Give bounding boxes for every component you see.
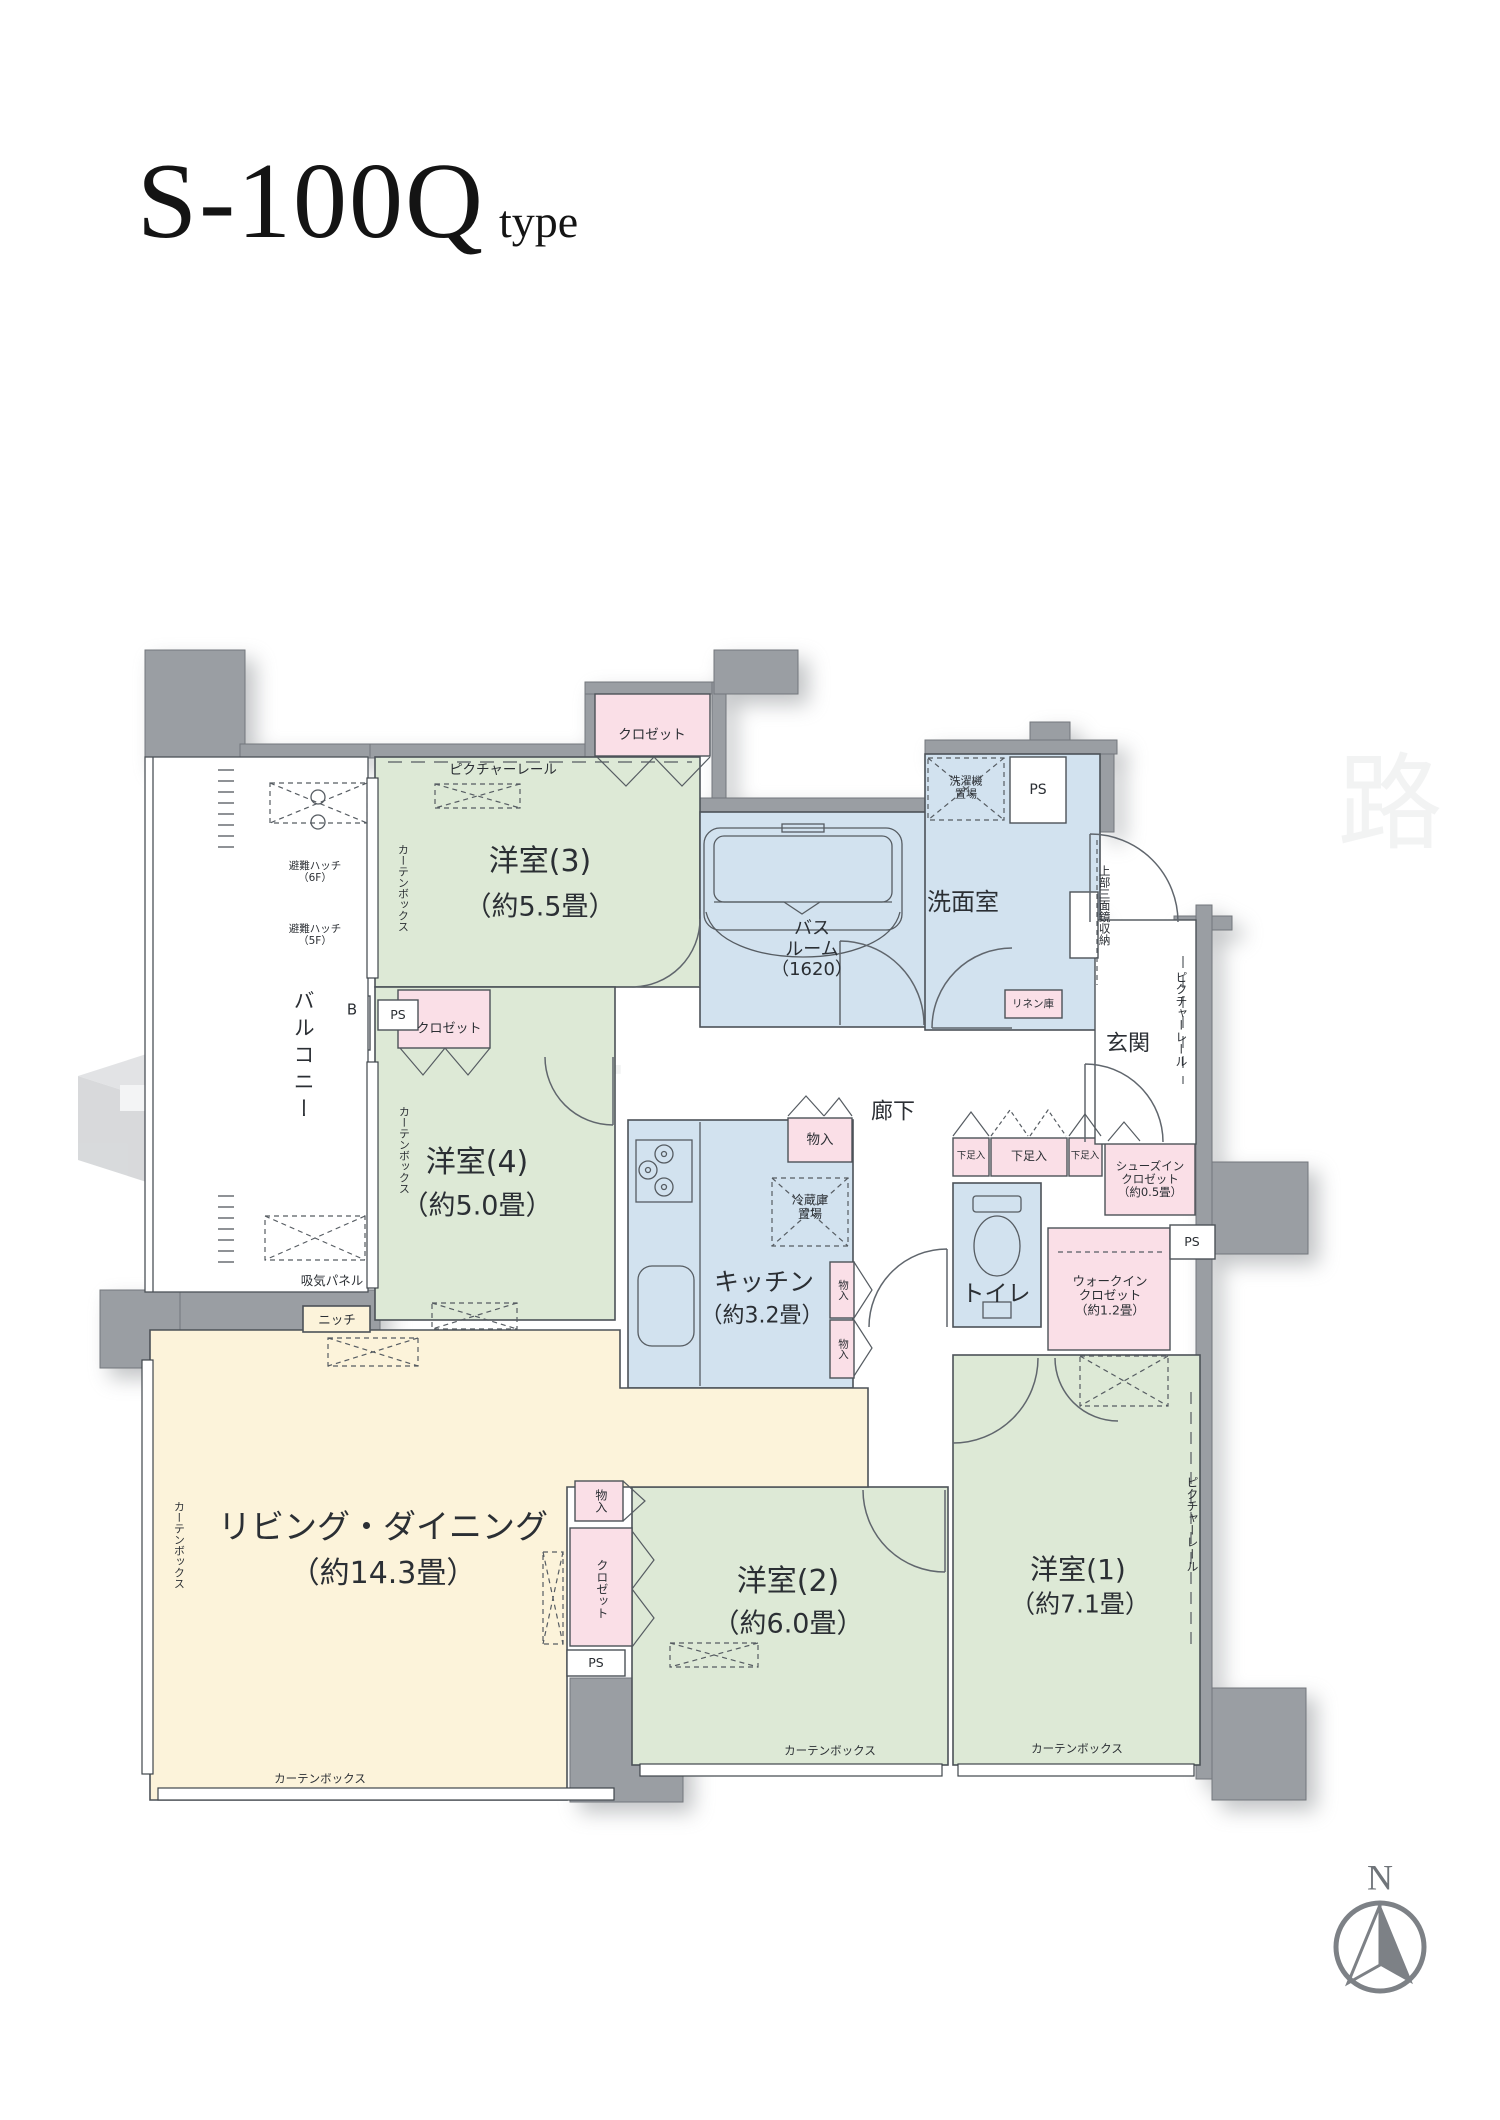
closet-label-y4: クロゼット xyxy=(416,1023,481,1038)
closet-yoshitsu3 xyxy=(595,694,710,756)
curtain-box-label-y3: カーテンボックス xyxy=(396,844,409,932)
room-size-yoshitsu1: （約7.1畳） xyxy=(1010,1591,1150,1620)
picture-rail-label-y1: ピクチャーレール xyxy=(1184,1476,1198,1572)
room-size-living: （約14.3畳） xyxy=(290,1557,477,1592)
room-size-yoshitsu3: （約5.5畳） xyxy=(465,891,616,922)
room-label-bath: バス ルーム （1620） xyxy=(771,919,853,981)
ps-label-balcony: PS xyxy=(390,1008,405,1022)
room-label-wash: 洗面室 xyxy=(927,889,999,917)
wic-label: ウォークイン クロゼット （約1.2畳） xyxy=(1072,1274,1147,1317)
room-label-yoshitsu1: 洋室(1) xyxy=(1030,1554,1126,1586)
floorplan-page: 中古 路 xyxy=(0,0,1500,2120)
plan-type-suffix: type xyxy=(499,195,578,248)
b-label: B xyxy=(347,1001,357,1018)
balcony xyxy=(145,757,368,1292)
mirror-storage-label: 上部三面鏡収納 xyxy=(1097,865,1110,946)
getabako-label-2: 下足入 xyxy=(1011,1150,1047,1164)
room-label-toilet: トイレ xyxy=(962,1281,1031,1307)
curtain-box-label-ld-bottom: カーテンボックス xyxy=(274,1772,366,1785)
washer-label: 洗濯機 置場 xyxy=(950,775,983,800)
picture-rail-label-y3: ピクチャーレール xyxy=(449,763,557,779)
closet-label-y3: クロゼット xyxy=(618,728,686,744)
intake-panel-label: 吸気パネル xyxy=(301,1274,364,1288)
monoire-label-k1: 物入 xyxy=(837,1280,849,1301)
room-label-living: リビング・ダイニング xyxy=(218,1508,548,1546)
getabako-label-1: 下足入 xyxy=(957,1152,986,1163)
curtain-box-label-y1: カーテンボックス xyxy=(1031,1742,1123,1755)
room-label-yoshitsu2: 洋室(2) xyxy=(737,1565,840,1600)
room-label-genkan: 玄関 xyxy=(1106,1031,1150,1056)
closet-label-ld: クロゼット xyxy=(594,1559,608,1619)
ps-label-wash: PS xyxy=(1029,782,1046,798)
room-size-yoshitsu2: （約6.0畳） xyxy=(713,1608,864,1639)
room-label-balcony: バルコニー xyxy=(291,990,315,1125)
getabako-label-3: 下足入 xyxy=(1071,1152,1100,1163)
niche-label: ニッチ xyxy=(318,1313,356,1327)
compass-icon xyxy=(1336,1903,1424,1991)
monoire-label-kitchen-top: 物入 xyxy=(807,1133,834,1149)
monoire-label-k2: 物入 xyxy=(837,1339,849,1360)
curtain-box-label-y4: カーテンボックス xyxy=(397,1106,410,1194)
room-label-yoshitsu4: 洋室(4) xyxy=(426,1146,529,1181)
monoire-label-ld: 物入 xyxy=(593,1489,607,1513)
room-label-kitchen: キッチン xyxy=(714,1269,814,1298)
room-size-kitchen: （約3.2畳） xyxy=(701,1303,824,1328)
room-size-yoshitsu4: （約5.0畳） xyxy=(402,1190,553,1221)
room-label-yoshitsu3: 洋室(3) xyxy=(489,845,592,880)
hatch6-label: 避難ハッチ （6F） xyxy=(289,860,342,884)
wash-counter xyxy=(1070,892,1098,958)
hatch5-label: 避難ハッチ （5F） xyxy=(289,923,342,947)
fridge-label: 冷蔵庫 置場 xyxy=(792,1194,828,1222)
picture-rail-label-genkan: ピクチャーレール xyxy=(1173,971,1187,1067)
curtain-box-label-y2: カーテンボックス xyxy=(784,1744,876,1757)
plan-type-code: S-100Q xyxy=(137,140,485,264)
linen-label: リネン庫 xyxy=(1012,998,1054,1010)
compass-n-label: N xyxy=(1367,1857,1393,1898)
ps-label-ld: PS xyxy=(588,1656,603,1670)
page-title: S-100Q type xyxy=(137,140,578,264)
room-label-hallway: 廊下 xyxy=(871,1099,915,1124)
sic-label: シューズイン クロゼット （約0.5畳） xyxy=(1116,1160,1184,1200)
curtain-box-label-ld-left: カーテンボックス xyxy=(172,1501,185,1589)
ps-label-sic: PS xyxy=(1184,1235,1199,1249)
